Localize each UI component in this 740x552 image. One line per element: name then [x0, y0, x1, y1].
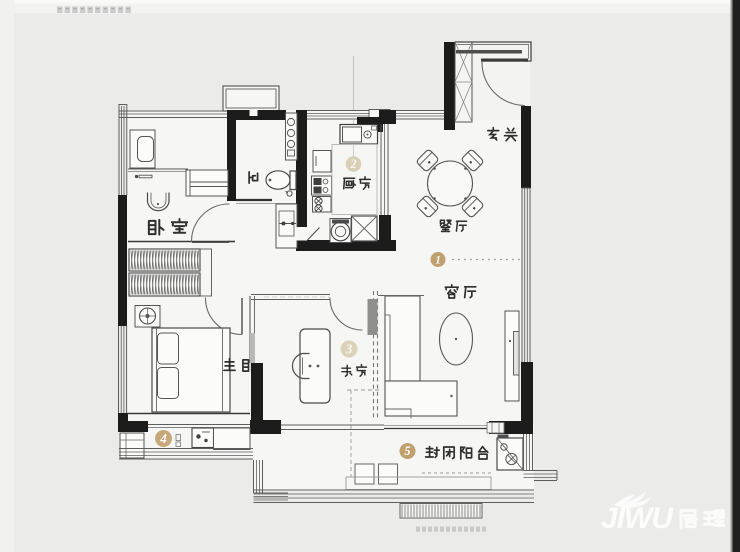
svg-text:1: 1 — [435, 253, 441, 266]
svg-text:3: 3 — [345, 341, 353, 356]
svg-text:JIWU: JIWU — [601, 502, 674, 535]
svg-text:2: 2 — [349, 157, 356, 171]
svg-text:4: 4 — [159, 431, 167, 446]
svg-text:5: 5 — [404, 444, 410, 458]
